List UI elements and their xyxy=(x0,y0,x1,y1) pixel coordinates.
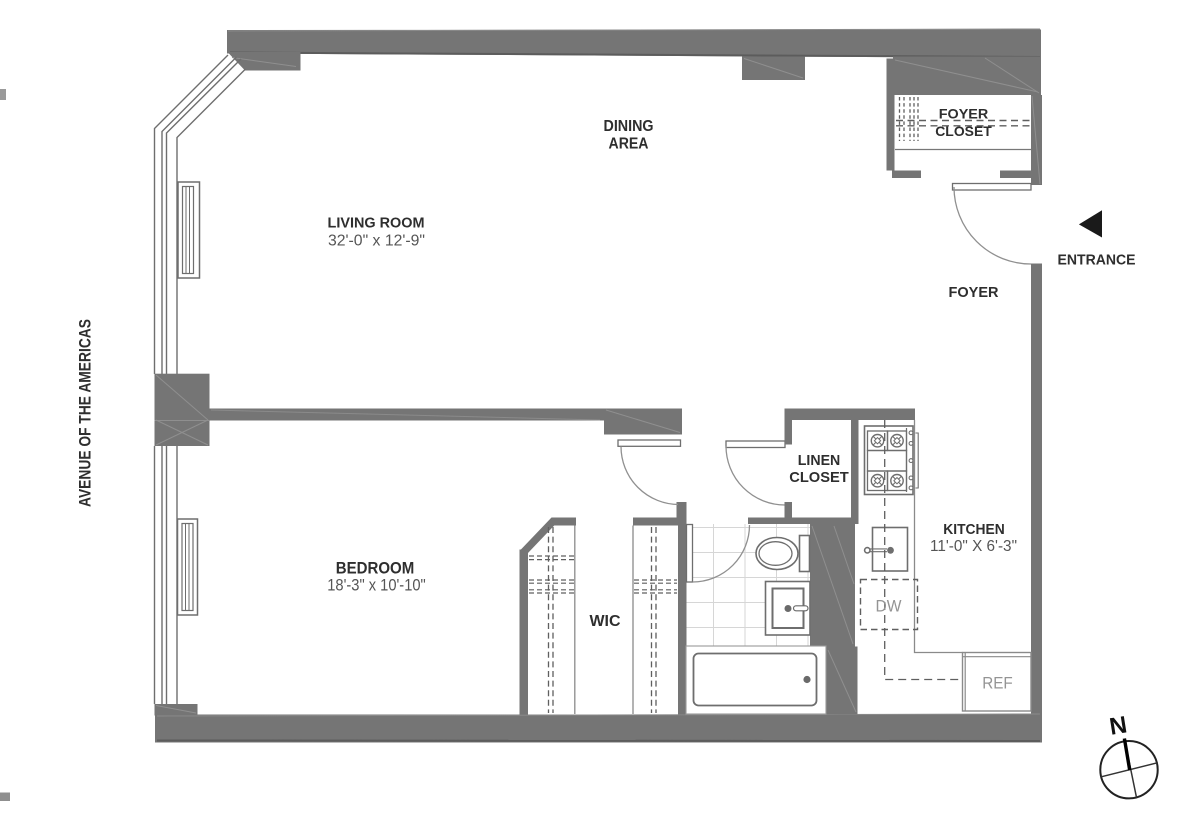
svg-text:CLOSET: CLOSET xyxy=(789,469,849,486)
svg-text:BEDROOM: BEDROOM xyxy=(336,559,415,578)
svg-text:FOYER: FOYER xyxy=(939,107,989,122)
svg-text:DINING: DINING xyxy=(604,118,654,135)
svg-text:WIC: WIC xyxy=(590,613,621,630)
svg-text:KITCHEN: KITCHEN xyxy=(943,522,1005,538)
svg-text:32'-0" x 12'-9": 32'-0" x 12'-9" xyxy=(328,233,425,250)
svg-text:DW: DW xyxy=(876,598,902,616)
svg-text:CLOSET: CLOSET xyxy=(935,124,992,139)
svg-text:REF: REF xyxy=(982,675,1013,693)
svg-text:FOYER: FOYER xyxy=(949,284,999,301)
svg-text:LIVING ROOM: LIVING ROOM xyxy=(328,216,425,232)
svg-text:AVENUE OF THE AMERICAS: AVENUE OF THE AMERICAS xyxy=(76,319,95,507)
svg-text:11'-0" X 6'-3": 11'-0" X 6'-3" xyxy=(930,538,1017,555)
svg-text:ENTRANCE: ENTRANCE xyxy=(1058,253,1136,269)
svg-text:AREA: AREA xyxy=(609,136,649,153)
svg-text:LINEN: LINEN xyxy=(798,452,841,469)
svg-text:18'-3" x 10'-10": 18'-3" x 10'-10" xyxy=(327,577,426,595)
